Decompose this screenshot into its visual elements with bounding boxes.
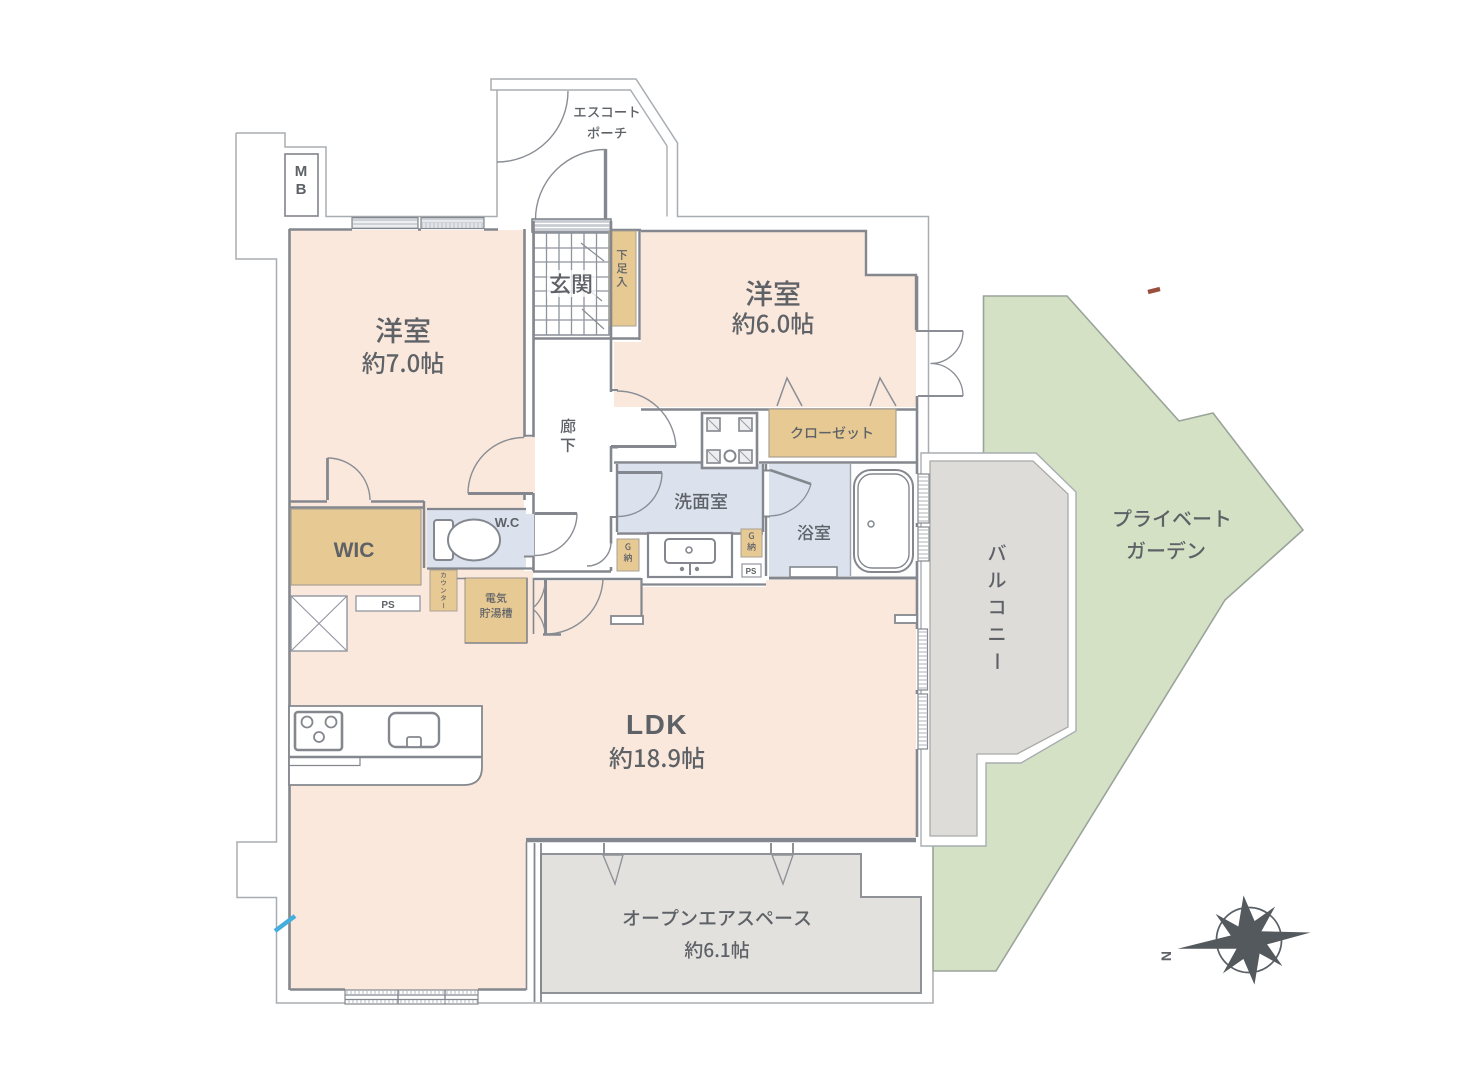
svg-text:WIC: WIC bbox=[334, 539, 375, 562]
svg-text:M: M bbox=[295, 163, 308, 180]
svg-text:W.C: W.C bbox=[495, 515, 520, 530]
svg-text:B: B bbox=[296, 181, 307, 198]
svg-text:N: N bbox=[1158, 951, 1174, 961]
svg-text:PS: PS bbox=[381, 600, 395, 611]
svg-text:PS: PS bbox=[746, 567, 757, 576]
svg-text:LDK: LDK bbox=[626, 709, 688, 740]
